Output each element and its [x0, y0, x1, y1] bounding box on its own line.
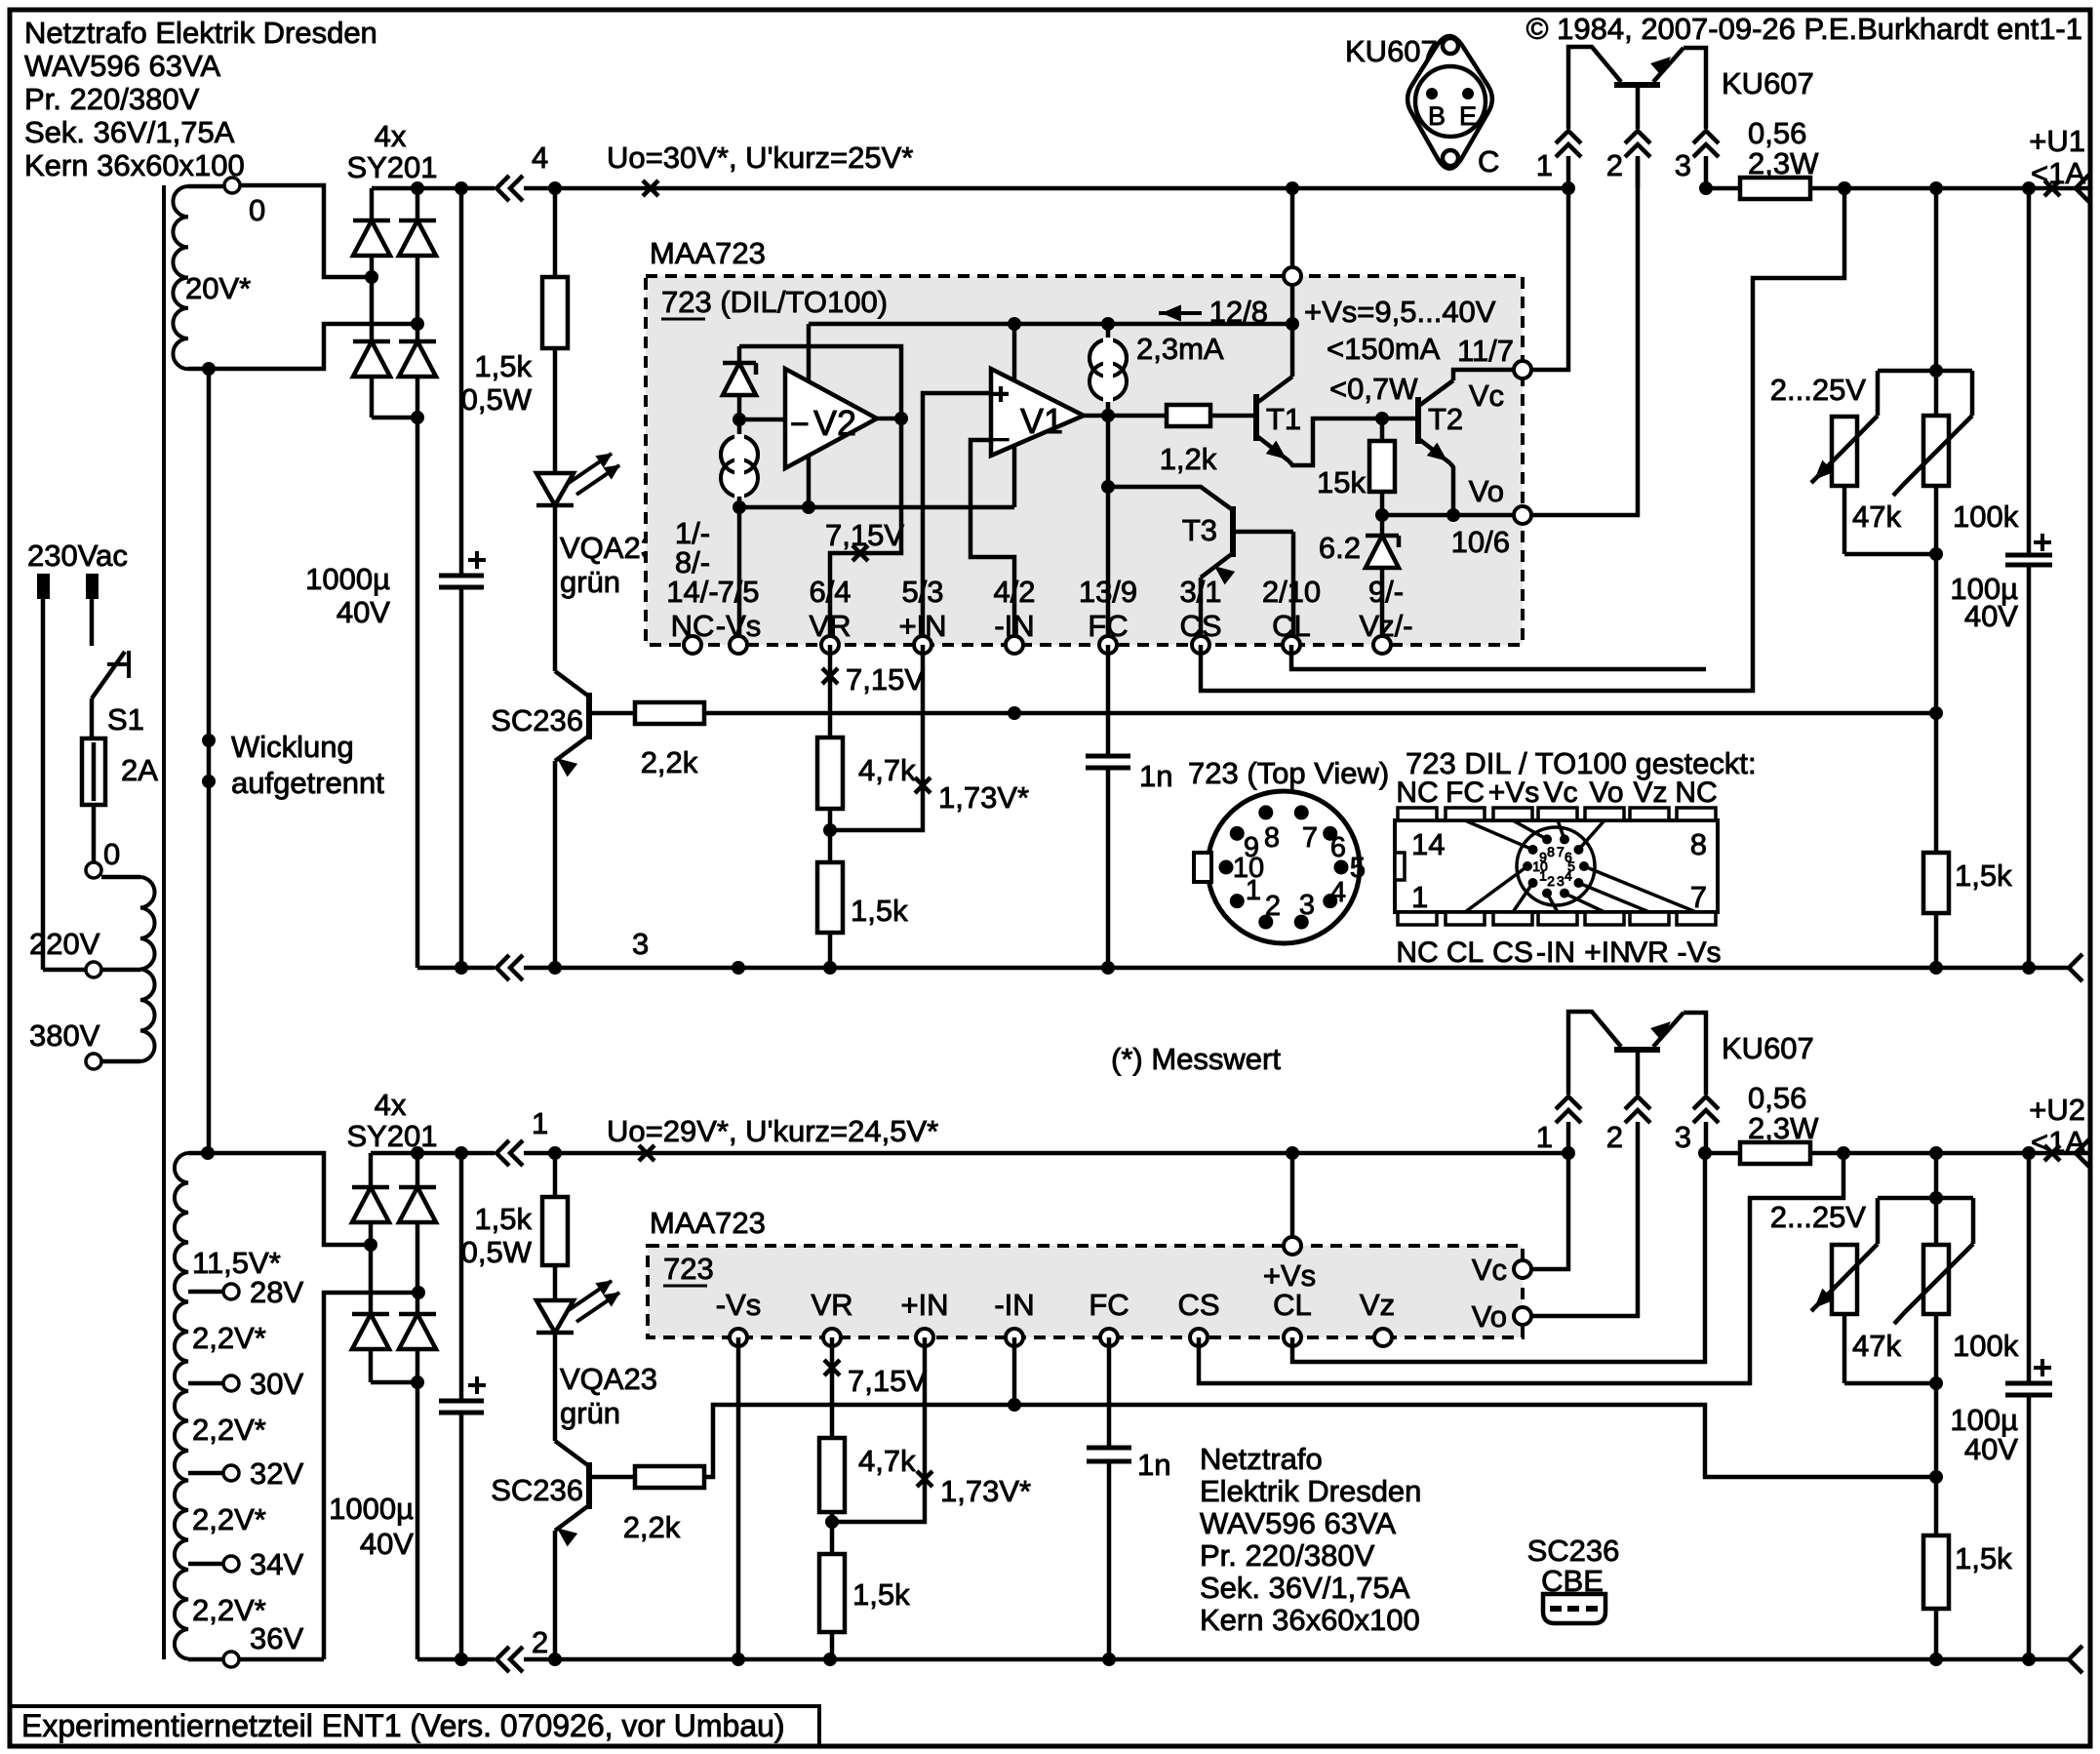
svg-text:CS: CS	[1179, 609, 1221, 643]
svg-text:14: 14	[1411, 827, 1445, 861]
svg-text:SY201: SY201	[346, 150, 437, 184]
svg-text:-IN: -IN	[994, 609, 1034, 643]
svg-text:2,2k: 2,2k	[623, 1510, 681, 1544]
svg-text:34V: 34V	[250, 1547, 303, 1581]
svg-text:KU607: KU607	[1345, 34, 1438, 68]
svg-text:+U1: +U1	[2029, 124, 2085, 158]
svg-text:4,7k: 4,7k	[858, 753, 916, 787]
svg-text:KU607: KU607	[1722, 66, 1814, 100]
svg-text:40V: 40V	[337, 595, 390, 629]
svg-text:2,3W: 2,3W	[1748, 1111, 1819, 1145]
svg-text:FC: FC	[1088, 609, 1128, 643]
svg-text:4x: 4x	[375, 1088, 407, 1122]
svg-text:+IN: +IN	[900, 1288, 948, 1322]
svg-text:SY201: SY201	[346, 1119, 437, 1153]
svg-text:Vc: Vc	[1469, 379, 1504, 413]
svg-text:4: 4	[532, 140, 548, 175]
svg-text:8: 8	[1547, 844, 1555, 859]
svg-text:C: C	[1478, 144, 1499, 179]
svg-text:380V: 380V	[29, 1018, 100, 1053]
svg-text:3: 3	[1557, 873, 1565, 889]
svg-text:2: 2	[532, 1625, 548, 1659]
svg-text:<150mA: <150mA	[1327, 332, 1441, 366]
svg-text:7,15V: 7,15V	[846, 662, 925, 697]
svg-text:1n: 1n	[1139, 759, 1172, 793]
svg-text:SC236: SC236	[1527, 1534, 1620, 1568]
svg-text:+IN: +IN	[898, 609, 946, 643]
svg-text:E: E	[1459, 101, 1477, 131]
svg-text:−: −	[790, 406, 810, 443]
svg-text:NC: NC	[1396, 937, 1438, 969]
svg-text:1,5k: 1,5k	[851, 894, 908, 928]
svg-text:+Vs: +Vs	[1263, 1258, 1316, 1293]
svg-text:<1A: <1A	[2031, 156, 2085, 190]
svg-text:1: 1	[1536, 1120, 1553, 1154]
svg-text:2,3W: 2,3W	[1748, 146, 1819, 180]
svg-text:8: 8	[1264, 822, 1280, 854]
svg-text:28V: 28V	[250, 1275, 303, 1309]
svg-text:4x: 4x	[375, 119, 407, 153]
svg-text:2...25V: 2...25V	[1770, 1200, 1867, 1234]
svg-text:0,56: 0,56	[1748, 116, 1806, 150]
svg-text:3: 3	[1675, 1120, 1691, 1154]
svg-text:© 1984, 2007-09-26 P.E.Burkhar: © 1984, 2007-09-26 P.E.Burkhardt ent1-1	[1526, 12, 2082, 46]
svg-text:+Vs: +Vs	[1488, 777, 1540, 809]
svg-text:13/9: 13/9	[1079, 575, 1137, 609]
svg-text:10/6: 10/6	[1451, 525, 1510, 559]
svg-text:<1A: <1A	[2031, 1125, 2085, 1159]
svg-text:723 (Top View): 723 (Top View)	[1188, 756, 1389, 790]
svg-text:T2: T2	[1428, 402, 1463, 436]
svg-text:Pr. 220/380V: Pr. 220/380V	[1200, 1538, 1375, 1573]
svg-text:Elektrik Dresden: Elektrik Dresden	[1200, 1474, 1421, 1508]
svg-text:1,2k: 1,2k	[1160, 442, 1217, 476]
svg-text:7,15V: 7,15V	[848, 1364, 927, 1398]
svg-text:230Vac: 230Vac	[27, 538, 128, 573]
svg-text:2A: 2A	[121, 753, 158, 787]
svg-text:WAV596 63VA: WAV596 63VA	[1200, 1506, 1396, 1540]
svg-text:Vo: Vo	[1469, 474, 1504, 508]
svg-text:6/4: 6/4	[809, 575, 851, 609]
svg-text:CL: CL	[1446, 937, 1484, 969]
svg-text:-Vs: -Vs	[716, 1288, 762, 1322]
svg-text:100k: 100k	[1953, 1329, 2019, 1363]
svg-text:Vo: Vo	[1589, 777, 1623, 809]
svg-text:MAA723: MAA723	[650, 1206, 766, 1240]
svg-text:KU607: KU607	[1722, 1031, 1814, 1065]
svg-text:aufgetrennt: aufgetrennt	[231, 766, 384, 800]
svg-text:CL: CL	[1272, 609, 1311, 643]
svg-text:2/10: 2/10	[1262, 575, 1321, 609]
svg-text:NC: NC	[671, 609, 715, 643]
svg-text:5: 5	[1350, 853, 1366, 884]
svg-text:6.2: 6.2	[1319, 531, 1361, 565]
svg-text:2,2V*: 2,2V*	[192, 1593, 266, 1627]
svg-text:V1: V1	[1020, 401, 1063, 441]
svg-text:+U2: +U2	[2029, 1093, 2085, 1127]
svg-text:7,15V: 7,15V	[825, 518, 904, 552]
svg-text:VR: VR	[811, 1288, 852, 1322]
svg-text:2,2k: 2,2k	[641, 745, 698, 779]
svg-text:CS: CS	[1492, 937, 1533, 969]
svg-text:−: −	[991, 421, 1010, 458]
svg-text:1,5k: 1,5k	[1955, 858, 2012, 893]
svg-text:Sek. 36V/1,75A: Sek. 36V/1,75A	[24, 115, 235, 149]
svg-text:+Vs=9,5...40V: +Vs=9,5...40V	[1304, 295, 1496, 329]
svg-text:5/3: 5/3	[901, 575, 943, 609]
svg-text:NC: NC	[1675, 777, 1717, 809]
svg-text:220V: 220V	[29, 927, 100, 961]
svg-text:T3: T3	[1182, 513, 1217, 547]
svg-text:1,73V*: 1,73V*	[940, 1474, 1031, 1508]
svg-text:Kern 36x60x100: Kern 36x60x100	[24, 148, 245, 182]
svg-text:1n: 1n	[1137, 1448, 1170, 1482]
svg-text:+: +	[992, 379, 1010, 411]
svg-text:Uo=30V*, U'kurz=25V*: Uo=30V*, U'kurz=25V*	[607, 140, 913, 175]
svg-text:7/5: 7/5	[717, 575, 759, 609]
svg-text:Experimentiernetzteil ENT1 (Ve: Experimentiernetzteil ENT1 (Vers. 070926…	[21, 1708, 785, 1743]
svg-text:32V: 32V	[250, 1456, 303, 1491]
svg-text:40V: 40V	[1964, 599, 2018, 633]
svg-text:1: 1	[1411, 880, 1428, 914]
svg-text:100k: 100k	[1953, 499, 2019, 534]
svg-text:2: 2	[1606, 1120, 1623, 1154]
svg-text:MAA723: MAA723	[650, 236, 766, 270]
svg-text:0: 0	[249, 193, 265, 227]
svg-text:-Vs: -Vs	[716, 609, 762, 643]
svg-text:2,2V*: 2,2V*	[192, 1413, 266, 1447]
svg-text:WAV596 63VA: WAV596 63VA	[24, 49, 220, 83]
svg-text:14/-: 14/-	[666, 575, 718, 609]
svg-text:3: 3	[632, 927, 649, 961]
svg-text:4/2: 4/2	[993, 575, 1035, 609]
svg-text:T1: T1	[1266, 402, 1301, 436]
svg-text:47k: 47k	[1852, 1329, 1901, 1363]
svg-text:723 (DIL/TO100): 723 (DIL/TO100)	[661, 285, 888, 319]
svg-text:1,5k: 1,5k	[852, 1577, 910, 1612]
svg-text:11/7: 11/7	[1457, 334, 1514, 368]
svg-text:grün: grün	[560, 565, 620, 599]
svg-text:Pr. 220/380V: Pr. 220/380V	[24, 82, 200, 116]
svg-text:6: 6	[1330, 832, 1346, 863]
svg-text:VQA23: VQA23	[560, 531, 657, 565]
svg-text:12/8: 12/8	[1209, 295, 1268, 329]
svg-text:Netztrafo Elektrik Dresden: Netztrafo Elektrik Dresden	[24, 16, 377, 50]
svg-text:Vz/-: Vz/-	[1359, 609, 1412, 643]
svg-text:Vo: Vo	[1472, 1299, 1507, 1334]
svg-text:0: 0	[103, 837, 120, 871]
svg-text:SC236: SC236	[491, 1473, 583, 1507]
svg-text:1000µ: 1000µ	[329, 1492, 414, 1526]
svg-text:1: 1	[1536, 148, 1553, 182]
svg-text:3: 3	[1299, 890, 1315, 921]
svg-text:VR: VR	[809, 609, 851, 643]
svg-text:1,5k: 1,5k	[1955, 1541, 2012, 1575]
svg-text:0,56: 0,56	[1748, 1081, 1806, 1115]
svg-text:Wicklung: Wicklung	[231, 730, 354, 764]
svg-text:2,2V*: 2,2V*	[192, 1502, 266, 1536]
svg-text:9: 9	[1244, 832, 1259, 863]
svg-text:11,5V*: 11,5V*	[192, 1246, 281, 1280]
svg-text:1,73V*: 1,73V*	[938, 780, 1029, 815]
svg-text:4: 4	[1565, 867, 1572, 883]
svg-text:4: 4	[1330, 877, 1346, 908]
svg-text:-Vs: -Vs	[1678, 937, 1722, 969]
svg-text:1: 1	[532, 1106, 548, 1140]
svg-text:2,2V*: 2,2V*	[192, 1321, 266, 1355]
svg-text:30V: 30V	[250, 1367, 303, 1401]
svg-text:8: 8	[1690, 827, 1707, 861]
svg-text:+IN: +IN	[1584, 937, 1631, 969]
svg-text:Netztrafo: Netztrafo	[1200, 1442, 1323, 1476]
svg-text:40V: 40V	[360, 1527, 414, 1561]
svg-text:47k: 47k	[1852, 499, 1901, 534]
svg-text:20V*: 20V*	[185, 271, 251, 305]
svg-text:2,3mA: 2,3mA	[1136, 332, 1224, 366]
svg-text:723 DIL / TO100 gesteckt:: 723 DIL / TO100 gesteckt:	[1406, 746, 1757, 780]
svg-text:40V: 40V	[1964, 1432, 2018, 1466]
svg-text:V2: V2	[813, 403, 856, 443]
svg-text:VQA23: VQA23	[560, 1362, 657, 1396]
svg-text:0,5W: 0,5W	[461, 1235, 533, 1269]
svg-text:NC: NC	[1396, 777, 1438, 809]
svg-text:Vc: Vc	[1543, 777, 1577, 809]
svg-text:SC236: SC236	[491, 703, 583, 737]
svg-text:723: 723	[663, 1252, 714, 1286]
svg-text:Vz: Vz	[1633, 777, 1667, 809]
svg-text:B: B	[1428, 101, 1446, 131]
svg-text:-IN: -IN	[994, 1288, 1034, 1322]
svg-text:0,5W: 0,5W	[461, 382, 533, 417]
svg-text:(*) Messwert: (*) Messwert	[1111, 1042, 1281, 1076]
svg-text:FC: FC	[1089, 1288, 1129, 1322]
svg-text:Sek. 36V/1,75A: Sek. 36V/1,75A	[1200, 1571, 1410, 1605]
svg-text:1,5k: 1,5k	[474, 1202, 532, 1236]
svg-text:<0,7W: <0,7W	[1329, 372, 1418, 406]
svg-text:1,5k: 1,5k	[474, 349, 532, 383]
svg-text:S1: S1	[107, 702, 144, 737]
svg-text:Uo=29V*, U'kurz=24,5V*: Uo=29V*, U'kurz=24,5V*	[607, 1114, 938, 1148]
svg-text:VR: VR	[1628, 937, 1669, 969]
svg-text:Kern 36x60x100: Kern 36x60x100	[1200, 1603, 1420, 1637]
svg-text:7: 7	[1302, 822, 1318, 854]
svg-text:Vc: Vc	[1472, 1253, 1507, 1287]
svg-text:3: 3	[1675, 148, 1691, 182]
svg-text:4,7k: 4,7k	[858, 1444, 916, 1478]
svg-text:2...25V: 2...25V	[1770, 373, 1867, 407]
svg-text:2: 2	[1547, 873, 1555, 889]
svg-text:grün: grün	[560, 1396, 620, 1430]
svg-text:CL: CL	[1273, 1288, 1312, 1322]
svg-text:Vz: Vz	[1360, 1288, 1395, 1322]
svg-text:3/1: 3/1	[1179, 575, 1221, 609]
svg-text:9: 9	[1539, 850, 1547, 865]
svg-text:FC: FC	[1446, 777, 1485, 809]
svg-text:-IN: -IN	[1536, 937, 1575, 969]
svg-text:CS: CS	[1177, 1288, 1219, 1322]
svg-text:2: 2	[1606, 148, 1623, 182]
svg-text:15k: 15k	[1317, 465, 1366, 499]
svg-text:9/-: 9/-	[1368, 575, 1404, 609]
svg-text:1000µ: 1000µ	[305, 562, 390, 596]
svg-text:7: 7	[1557, 844, 1565, 859]
svg-text:2: 2	[1265, 891, 1281, 922]
